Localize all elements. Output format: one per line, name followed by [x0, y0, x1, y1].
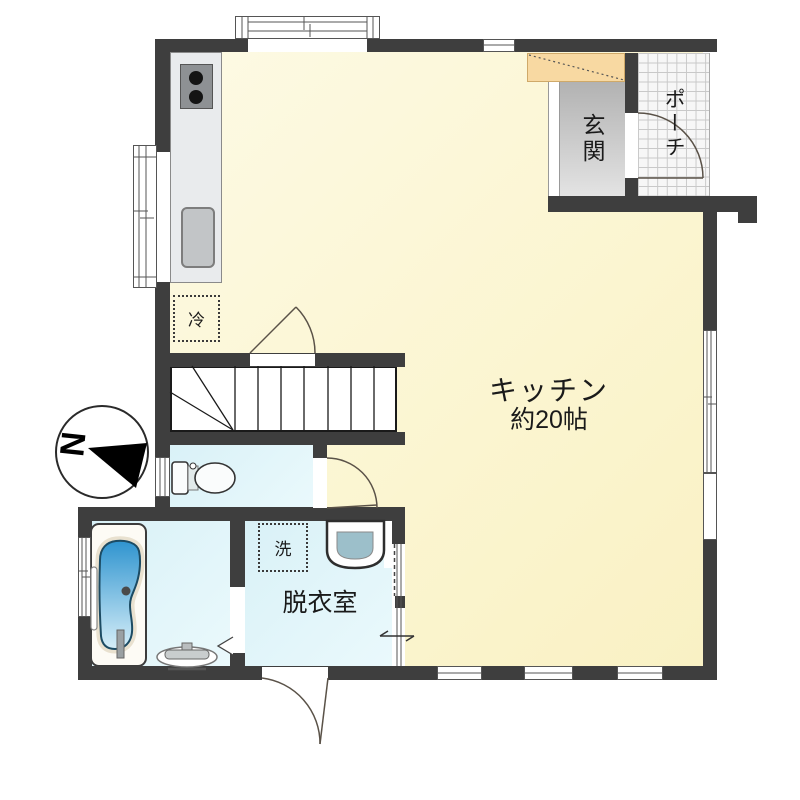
entrance-window — [483, 39, 515, 52]
bathroom-door-opening — [230, 587, 245, 653]
washing-machine-label: 洗 — [275, 535, 292, 560]
right-window-upper — [703, 330, 717, 473]
bay-window-left — [133, 145, 157, 288]
bay-window-left-opening — [155, 152, 170, 282]
sliding-door-stop — [395, 596, 405, 608]
right-window-lower — [703, 473, 717, 540]
washing-machine-space: 洗 — [258, 523, 308, 572]
shoe-closet — [527, 53, 625, 82]
wall-entrance-stub — [738, 212, 757, 223]
room-toilet-floor — [170, 445, 313, 507]
toilet-door-opening — [313, 458, 327, 508]
bottom-window-1 — [437, 666, 482, 680]
compass — [55, 405, 149, 499]
back-door-opening — [262, 667, 328, 680]
bay-window-top — [235, 16, 380, 39]
sliding-door-pocket — [384, 521, 392, 568]
bathroom-window — [78, 537, 91, 617]
stairs — [170, 366, 397, 432]
kitchen-sink — [181, 207, 215, 268]
kitchen-size-label: 約20帖 — [510, 400, 588, 436]
kitchen-size: 約20帖 — [510, 406, 588, 434]
bottom-window-3 — [617, 666, 663, 680]
stair-door-opening — [250, 354, 315, 366]
porch-label: ポーチ — [658, 88, 688, 160]
entrance-label: 玄関 — [575, 113, 609, 165]
floor-plan-canvas: 冷 洗 — [0, 0, 800, 800]
wall-wetband — [78, 507, 405, 521]
bay-window-top-opening — [248, 39, 367, 52]
entrance-name: 玄関 — [579, 113, 605, 165]
wall-top — [155, 39, 717, 52]
porch-door-opening — [625, 113, 638, 178]
dressing-room-label: 脱衣室 — [282, 583, 357, 619]
wall-entrance-band — [548, 196, 757, 212]
toilet-window — [155, 457, 170, 497]
bottom-window-2 — [524, 666, 573, 680]
refrigerator-label: 冷 — [188, 306, 205, 331]
stove — [180, 64, 213, 109]
refrigerator-space: 冷 — [173, 295, 220, 342]
dressing-room-name: 脱衣室 — [282, 589, 357, 617]
wall-stairs-bottom — [155, 432, 405, 445]
porch-name: ポーチ — [662, 88, 685, 160]
bathtub-unit — [90, 523, 147, 667]
entrance-step — [548, 82, 560, 197]
